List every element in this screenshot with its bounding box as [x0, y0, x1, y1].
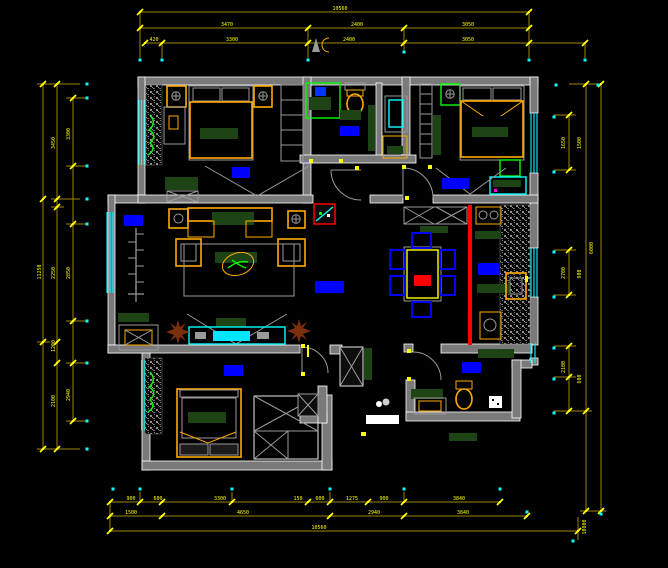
dim-label: 3300: [66, 128, 72, 140]
tall-cabinet: [368, 105, 375, 151]
dimension-chain-left: 11250 3450 2250 1200 2100 3300 2850 2940: [37, 81, 89, 452]
dim-label: 2940: [66, 389, 72, 401]
cabinet-shelf: [420, 226, 448, 233]
floor-plan-drawing: 10560 3470 2400 3050 420 3300 2400 3050 …: [0, 0, 668, 568]
washer-detail: [387, 146, 403, 154]
shower-bench: [309, 97, 331, 110]
floor-drain: [489, 396, 502, 408]
wall-entry-left-v: [318, 386, 327, 423]
coffee-table-top: [215, 252, 257, 263]
sideboard-cabinet: [404, 207, 467, 224]
counter: [477, 284, 509, 293]
counter: [478, 349, 514, 358]
footprint-icon: [376, 399, 390, 408]
bed-drawer: [210, 444, 238, 455]
dim-label: 4650: [237, 510, 249, 516]
dim-label: 10560: [311, 525, 326, 531]
dim-label: 900: [379, 496, 388, 502]
dim-label: 420: [149, 37, 158, 43]
dim-label: 6000: [589, 242, 595, 254]
dim-label: 2400: [343, 37, 355, 43]
dim-label: 3050: [462, 22, 474, 28]
cad-canvas: 10560 3470 2400 3050 420 3300 2400 3050 …: [0, 0, 668, 568]
dining-table: [404, 247, 441, 301]
bed-outline: [189, 86, 253, 160]
sofa-cushions: [212, 212, 254, 225]
dim-label: 2700: [561, 267, 567, 279]
room-label-block: [124, 215, 143, 226]
room-label-block: [462, 362, 481, 373]
pillow: [193, 88, 220, 101]
shower-head-icon: [315, 87, 326, 96]
wall-right: [530, 173, 538, 248]
bedroom-top-right: [420, 84, 526, 194]
hall-cabinet: [340, 347, 363, 386]
dim-label: 150: [293, 496, 302, 502]
speaker: [257, 332, 269, 339]
toilet: [456, 381, 472, 409]
armchair: [176, 239, 201, 266]
pillow: [493, 88, 521, 100]
wall-bedroom2-bottom: [433, 195, 538, 203]
wall-hall-top-left: [138, 195, 313, 203]
living-room: [118, 208, 311, 350]
radiator-rack: [128, 228, 144, 302]
bed-runner: [200, 128, 238, 139]
door-arc: [331, 170, 361, 200]
lamp-icon: [292, 215, 300, 223]
pillow: [222, 88, 249, 101]
dim-label: 2940: [368, 510, 380, 516]
bathroom-bottom: [411, 349, 514, 414]
feature-wall-tl: [146, 85, 162, 165]
window-bedroom-tr: [531, 113, 537, 173]
dining-area: [390, 207, 467, 317]
wall-bottom-bedroom: [142, 461, 332, 470]
entry-mat: [366, 415, 399, 424]
gas-stove: [476, 207, 501, 224]
dim-label: 2250: [51, 267, 57, 279]
dim-label: 1650: [561, 137, 567, 149]
wall-bath2-right: [512, 360, 521, 418]
room-label-block: [315, 281, 344, 293]
door-swing-lines: [205, 166, 309, 196]
armchair-cushion: [181, 244, 196, 261]
desk-top: [493, 180, 521, 187]
lamp-icon: [259, 92, 267, 100]
room-label-block: [224, 365, 243, 376]
dim-label: 600: [577, 374, 583, 383]
wall-top: [138, 77, 538, 85]
bathroom-top: [306, 83, 407, 158]
speaker: [195, 332, 206, 339]
bench-cushion: [165, 177, 198, 190]
washing-machine: [480, 312, 501, 339]
wall-right: [530, 77, 538, 113]
lamp-icon: [172, 92, 180, 100]
bath-cabinet: [340, 110, 361, 120]
counter: [475, 231, 501, 239]
armchair-cushion: [283, 244, 300, 261]
dim-label: 1500: [577, 137, 583, 149]
bed-runner: [472, 127, 508, 137]
bedroom-bottom-left: [177, 389, 318, 459]
dim-label: 3840: [453, 496, 465, 502]
basin: [419, 401, 441, 411]
pillow: [463, 88, 491, 100]
red-partition: [468, 205, 472, 345]
plant-icon: [166, 320, 190, 344]
dresser: [164, 107, 185, 144]
legend-dot: [327, 214, 330, 217]
dim-label: 3300: [214, 496, 226, 502]
dim-label: 2400: [351, 22, 363, 28]
room-label-block: [442, 178, 469, 189]
desk-chair: [500, 160, 520, 176]
bedroom-top-left: [164, 85, 309, 202]
room-label-block: [340, 126, 359, 136]
legend-dot: [319, 212, 322, 215]
bed-drape: [461, 101, 523, 116]
headboard: [180, 390, 238, 397]
shoe-cabinet: [298, 394, 318, 416]
dim-label: 600: [153, 496, 162, 502]
dim-label: 2100: [561, 361, 567, 373]
dim-label: 1500: [125, 510, 137, 516]
dresser-handle: [169, 116, 178, 129]
tv-screen: [213, 331, 250, 341]
washbasin-bowl: [389, 100, 403, 127]
dining-table-top: [407, 250, 438, 298]
wall-hall-top-mid: [370, 195, 403, 203]
wall-left-living: [108, 195, 115, 352]
window-shelf: [118, 313, 149, 322]
door-arc: [302, 347, 328, 373]
sofa-seat: [188, 221, 214, 237]
table-centerpiece: [414, 275, 431, 286]
dim-label: 10560: [332, 6, 347, 12]
bed-drawer: [180, 444, 208, 455]
cabinet-side: [364, 348, 372, 380]
wall-living-bottom: [108, 345, 300, 353]
bed-outline: [460, 86, 524, 160]
lamp-icon: [174, 214, 183, 223]
wall-bedroom-bath: [303, 77, 311, 203]
bed-runner: [188, 412, 226, 423]
dimension-chain-top: 10560 3470 2400 3050 420 3300 2400 3050: [137, 6, 588, 62]
window-kitchen: [531, 248, 537, 297]
dim-label: 11250: [37, 264, 43, 279]
dim-label: 600: [315, 496, 324, 502]
outside-bench: [449, 433, 477, 441]
dim-label: 2100: [51, 395, 57, 407]
shelf-unit: [420, 84, 432, 158]
tall-green-unit: [433, 115, 441, 155]
dim-label: 900: [577, 269, 583, 278]
dim-label: 1200: [51, 340, 57, 352]
armchair: [278, 239, 305, 266]
dim-label: 3450: [51, 137, 57, 149]
dim-label: 2850: [66, 267, 72, 279]
media-shelf: [216, 318, 246, 327]
dim-label: 900: [126, 496, 135, 502]
desk-detail: [494, 189, 497, 192]
wall-bath-divider: [376, 83, 382, 157]
wall-bath2-bottom: [406, 412, 520, 421]
side-table: [169, 209, 188, 228]
dimension-chain-right: 1650 2700 2100 1500 900 600 6000 10800: [553, 81, 607, 535]
dim-label: 3470: [221, 22, 233, 28]
dim-label: 3300: [226, 37, 238, 43]
wardrobe: [281, 85, 303, 161]
fan-icon: [446, 90, 454, 98]
toilet-seat: [347, 90, 363, 96]
room-label-block: [232, 167, 250, 178]
dim-label: 3050: [462, 37, 474, 43]
wall-bath-bottom: [300, 155, 416, 163]
room-label-block: [478, 263, 499, 275]
dim-label: 3840: [457, 510, 469, 516]
section-mark-icon: [312, 38, 329, 52]
dim-label: 1275: [346, 496, 358, 502]
door-arc: [413, 352, 441, 380]
wall-right: [530, 297, 538, 345]
plant-icon: [287, 319, 311, 343]
door-arc: [403, 168, 433, 198]
dim-label: 10800: [582, 519, 588, 534]
dimension-chain-bottom: 900 600 3300 150 600 1275 900 3840 1500 …: [107, 488, 581, 543]
